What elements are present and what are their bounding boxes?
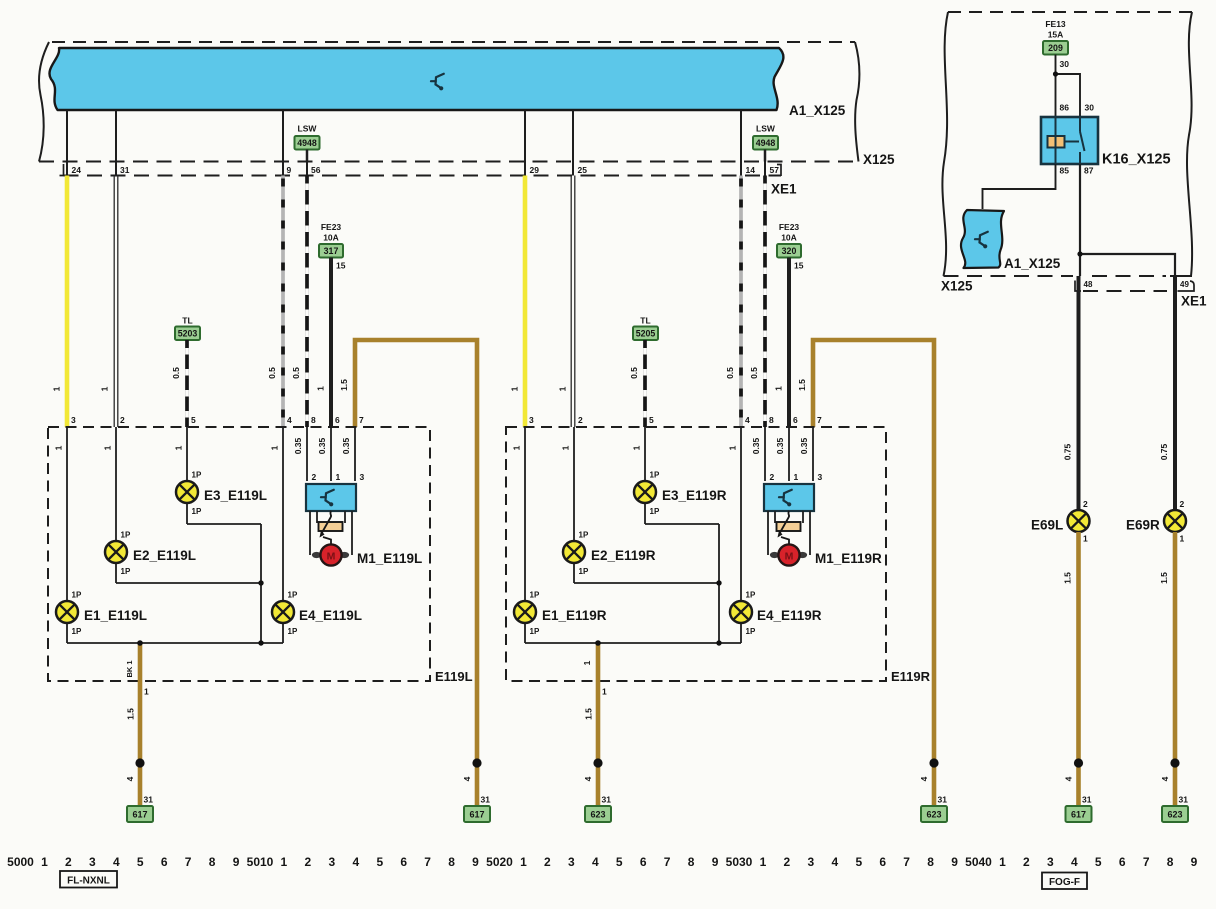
svg-text:6: 6 [400,855,407,869]
svg-text:4: 4 [919,776,929,781]
svg-text:5205: 5205 [636,329,656,339]
svg-text:1P: 1P [121,567,131,576]
svg-text:1: 1 [582,660,592,665]
svg-text:7: 7 [185,855,192,869]
svg-text:31: 31 [481,795,491,805]
svg-text:15: 15 [794,261,804,271]
svg-text:1P: 1P [650,507,660,516]
svg-text:5: 5 [376,855,383,869]
svg-text:617: 617 [132,809,147,819]
svg-text:1: 1 [41,855,48,869]
svg-text:10A: 10A [781,233,797,243]
svg-text:0.35: 0.35 [751,437,761,454]
svg-text:4: 4 [113,855,120,869]
svg-text:9: 9 [712,855,719,869]
svg-text:0.5: 0.5 [291,367,301,379]
svg-text:2: 2 [120,415,125,425]
svg-text:0.35: 0.35 [317,437,327,454]
svg-text:623: 623 [1167,809,1182,819]
svg-text:X125: X125 [941,279,973,294]
svg-text:1P: 1P [579,567,589,576]
svg-text:E4_E119R: E4_E119R [757,608,822,623]
svg-text:TL: TL [182,316,192,326]
svg-text:1: 1 [512,445,522,450]
svg-text:1: 1 [100,386,110,391]
svg-text:3: 3 [568,855,575,869]
svg-text:5: 5 [137,855,144,869]
svg-text:320: 320 [782,246,797,256]
svg-text:1: 1 [281,855,288,869]
svg-text:1: 1 [794,472,799,482]
svg-text:1.5: 1.5 [339,379,349,391]
svg-text:49: 49 [1180,280,1189,289]
svg-text:1.5: 1.5 [1159,572,1169,584]
svg-text:10A: 10A [323,233,339,243]
svg-text:2: 2 [578,415,583,425]
svg-text:E3_E119R: E3_E119R [662,488,727,503]
svg-text:E1_E119L: E1_E119L [84,608,147,623]
svg-text:FOG-F: FOG-F [1049,877,1080,888]
svg-text:1: 1 [632,445,642,450]
svg-text:4: 4 [1071,855,1078,869]
svg-text:1: 1 [54,445,64,450]
svg-text:5203: 5203 [178,329,198,339]
svg-text:1P: 1P [530,591,540,600]
svg-text:5: 5 [1095,855,1102,869]
svg-text:E119R: E119R [891,669,931,684]
svg-text:1P: 1P [746,627,756,636]
svg-text:1P: 1P [650,471,660,480]
svg-text:1: 1 [999,855,1006,869]
svg-text:1P: 1P [192,507,202,516]
svg-text:E2_E119L: E2_E119L [133,548,196,563]
svg-text:E3_E119L: E3_E119L [204,488,267,503]
svg-text:K16_X125: K16_X125 [1102,152,1171,168]
svg-text:4: 4 [1160,776,1170,781]
svg-text:1P: 1P [288,627,298,636]
svg-text:3: 3 [328,855,335,869]
svg-text:M1_E119L: M1_E119L [357,551,422,566]
svg-text:1: 1 [602,687,607,697]
svg-text:1.5: 1.5 [1063,572,1073,584]
svg-text:5: 5 [191,415,196,425]
svg-text:4948: 4948 [756,138,776,148]
svg-text:8: 8 [769,415,774,425]
svg-text:30: 30 [1085,103,1095,113]
svg-text:87: 87 [1084,166,1094,176]
svg-text:4: 4 [462,776,472,781]
svg-text:1: 1 [270,445,280,450]
svg-text:1: 1 [774,386,784,391]
svg-text:XE1: XE1 [1181,294,1207,309]
svg-text:XE1: XE1 [771,182,797,197]
svg-text:1P: 1P [72,627,82,636]
svg-text:1: 1 [316,386,326,391]
svg-text:X125: X125 [863,152,895,167]
svg-text:6: 6 [1119,855,1126,869]
svg-text:31: 31 [602,795,612,805]
svg-text:8: 8 [927,855,934,869]
svg-text:31: 31 [144,795,154,805]
svg-text:617: 617 [469,809,484,819]
svg-text:9: 9 [287,165,292,175]
svg-text:M: M [785,551,794,563]
svg-text:31: 31 [938,795,948,805]
svg-text:0.5: 0.5 [171,367,181,379]
svg-text:25: 25 [578,165,588,175]
svg-text:0.35: 0.35 [341,437,351,454]
svg-text:14: 14 [746,165,756,175]
svg-text:6: 6 [640,855,647,869]
svg-text:1: 1 [52,386,62,391]
svg-text:1P: 1P [746,591,756,600]
svg-text:0.35: 0.35 [799,437,809,454]
svg-text:3: 3 [89,855,96,869]
svg-text:9: 9 [472,855,479,869]
svg-text:1: 1 [510,386,520,391]
svg-text:31: 31 [120,165,130,175]
svg-text:LSW: LSW [298,124,318,134]
svg-text:2: 2 [312,472,317,482]
svg-text:5: 5 [616,855,623,869]
svg-text:FE13: FE13 [1045,19,1066,29]
svg-text:A1_X125: A1_X125 [789,103,846,118]
svg-text:FE23: FE23 [779,222,800,232]
svg-text:8: 8 [311,415,316,425]
svg-text:1P: 1P [121,531,131,540]
svg-text:3: 3 [818,472,823,482]
svg-text:3: 3 [808,855,815,869]
svg-text:0.75: 0.75 [1159,443,1169,460]
svg-text:1P: 1P [192,471,202,480]
svg-text:9: 9 [1191,855,1198,869]
svg-text:0.5: 0.5 [629,367,639,379]
svg-text:8: 8 [688,855,695,869]
svg-text:31: 31 [1082,795,1092,805]
svg-text:2: 2 [1023,855,1030,869]
svg-text:4: 4 [1064,776,1074,781]
svg-text:4: 4 [745,415,750,425]
svg-text:5040: 5040 [965,855,992,869]
svg-text:57: 57 [770,165,780,175]
svg-text:4: 4 [592,855,599,869]
svg-text:1: 1 [144,687,149,697]
svg-text:48: 48 [1084,280,1093,289]
svg-text:56: 56 [311,165,321,175]
svg-text:E69L: E69L [1031,518,1063,533]
svg-text:8: 8 [448,855,455,869]
svg-text:0.35: 0.35 [293,437,303,454]
svg-text:9: 9 [951,855,958,869]
svg-text:2: 2 [1083,499,1088,509]
svg-text:1: 1 [1083,534,1088,544]
svg-text:0.5: 0.5 [267,367,277,379]
svg-text:FE23: FE23 [321,222,342,232]
svg-text:6: 6 [879,855,886,869]
svg-text:4: 4 [583,776,593,781]
svg-text:209: 209 [1048,43,1063,53]
svg-text:E119L: E119L [435,669,473,684]
svg-text:5: 5 [649,415,654,425]
svg-text:4: 4 [125,776,135,781]
svg-text:31: 31 [1179,795,1189,805]
svg-text:E69R: E69R [1126,518,1160,533]
svg-text:4: 4 [352,855,359,869]
svg-text:5020: 5020 [486,855,513,869]
svg-text:0.35: 0.35 [775,437,785,454]
svg-text:3: 3 [529,415,534,425]
svg-text:E2_E119R: E2_E119R [591,548,656,563]
svg-text:1.5: 1.5 [126,708,136,720]
svg-text:15A: 15A [1048,30,1064,40]
svg-text:623: 623 [926,809,941,819]
svg-text:2: 2 [65,855,72,869]
svg-text:3: 3 [360,472,365,482]
svg-text:2: 2 [784,855,791,869]
svg-text:E4_E119L: E4_E119L [299,608,362,623]
svg-text:0.5: 0.5 [725,367,735,379]
svg-text:24: 24 [72,165,82,175]
svg-text:1P: 1P [579,531,589,540]
svg-text:2: 2 [305,855,312,869]
svg-text:8: 8 [209,855,216,869]
svg-text:TL: TL [640,316,650,326]
svg-text:7: 7 [903,855,910,869]
svg-text:85: 85 [1060,166,1070,176]
svg-text:FL-NXNL: FL-NXNL [67,876,110,887]
svg-text:M: M [327,551,336,563]
svg-text:1: 1 [728,445,738,450]
svg-text:2: 2 [770,472,775,482]
svg-text:8: 8 [1167,855,1174,869]
svg-text:1P: 1P [530,627,540,636]
svg-text:1P: 1P [72,591,82,600]
svg-text:A1_X125: A1_X125 [1004,256,1061,271]
svg-text:1: 1 [558,386,568,391]
svg-text:317: 317 [324,246,339,256]
svg-text:0.5: 0.5 [749,367,759,379]
svg-text:7: 7 [817,415,822,425]
svg-text:1: 1 [174,445,184,450]
svg-text:86: 86 [1060,103,1070,113]
svg-text:7: 7 [664,855,671,869]
svg-text:3: 3 [71,415,76,425]
svg-text:5030: 5030 [726,855,753,869]
svg-text:1: 1 [760,855,767,869]
svg-text:1P: 1P [288,591,298,600]
svg-text:2: 2 [544,855,551,869]
svg-text:29: 29 [530,165,540,175]
svg-text:4: 4 [831,855,838,869]
svg-text:6: 6 [335,415,340,425]
svg-text:LSW: LSW [756,124,776,134]
svg-text:1: 1 [1180,534,1185,544]
svg-text:30: 30 [1060,59,1070,69]
svg-text:1: 1 [336,472,341,482]
svg-text:5: 5 [855,855,862,869]
svg-text:4948: 4948 [297,138,317,148]
svg-text:2: 2 [1180,499,1185,509]
svg-text:1: 1 [561,445,571,450]
svg-text:1.5: 1.5 [797,379,807,391]
svg-text:7: 7 [1143,855,1150,869]
svg-text:617: 617 [1071,809,1086,819]
svg-text:7: 7 [359,415,364,425]
svg-text:4: 4 [287,415,292,425]
svg-text:1: 1 [520,855,527,869]
svg-text:BK 1: BK 1 [125,660,134,677]
svg-text:7: 7 [424,855,431,869]
svg-text:3: 3 [1047,855,1054,869]
svg-text:5010: 5010 [247,855,274,869]
svg-text:5000: 5000 [7,855,34,869]
svg-text:1: 1 [103,445,113,450]
svg-text:E1_E119R: E1_E119R [542,608,607,623]
svg-text:6: 6 [161,855,168,869]
svg-text:0.75: 0.75 [1063,443,1073,460]
svg-text:1.5: 1.5 [584,708,594,720]
svg-text:M1_E119R: M1_E119R [815,551,882,566]
svg-text:6: 6 [793,415,798,425]
svg-text:15: 15 [336,261,346,271]
svg-text:9: 9 [233,855,240,869]
svg-text:623: 623 [590,809,605,819]
